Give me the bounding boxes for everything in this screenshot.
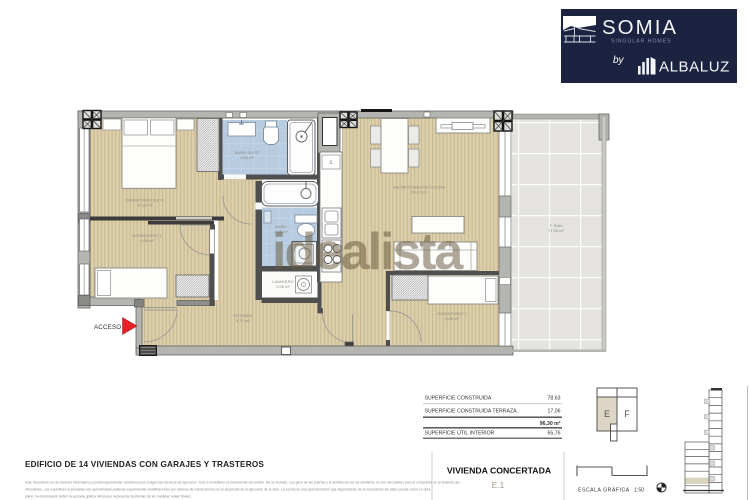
svg-text:78,63: 78,63 (548, 396, 561, 402)
svg-text:8,06 m²: 8,06 m² (445, 316, 459, 321)
svg-text:vinculantes. Las superficies e: vinculantes. Las superficies expresadas … (25, 488, 431, 492)
svg-text:E.1: E.1 (492, 480, 505, 490)
svg-text:96,30 m²: 96,30 m² (540, 421, 561, 427)
svg-text:VIVIENDA CONCERTADA: VIVIENDA CONCERTADA (447, 466, 552, 476)
svg-text:77,06 m²: 77,06 m² (548, 228, 564, 233)
svg-text:SUPERFICIE ÚTIL INTERIOR: SUPERFICIE ÚTIL INTERIOR (425, 430, 495, 437)
svg-text:8,06 m²: 8,06 m² (140, 238, 154, 243)
svg-text:6,71 m²: 6,71 m² (236, 318, 250, 323)
svg-text:idealista: idealista (272, 223, 464, 281)
svg-text:ACCESO: ACCESO (94, 324, 121, 331)
svg-text:2,06 m²: 2,06 m² (276, 284, 290, 289)
svg-text:c: c (330, 160, 333, 166)
svg-text:24,07 m²: 24,07 m² (411, 190, 427, 195)
svg-text:by: by (613, 55, 625, 66)
svg-text:SUPERFICIE CONSTRUIDA TERRAZA: SUPERFICIE CONSTRUIDA TERRAZA (425, 409, 518, 415)
svg-text:E: E (604, 409, 610, 419)
svg-text:4,64 m²: 4,64 m² (240, 155, 254, 160)
svg-text:65,76: 65,76 (548, 431, 561, 437)
svg-text:EDIFICIO DE 14 VIVIENDAS CON G: EDIFICIO DE 14 VIVIENDAS CON GARAJES Y T… (25, 460, 264, 469)
svg-text:SUPERFICIE CONSTRUIDA: SUPERFICIE CONSTRUIDA (425, 396, 492, 402)
svg-text:ESCALA GRÁFICA: ESCALA GRÁFICA (578, 487, 630, 494)
svg-text:F: F (624, 409, 630, 419)
svg-text:10,92 m²: 10,92 m² (137, 203, 153, 208)
svg-text:1:50: 1:50 (634, 488, 644, 494)
svg-text:SOMIA: SOMIA (602, 16, 678, 39)
svg-text:17,06: 17,06 (548, 409, 561, 415)
svg-text:Este documento es de carácter: Este documento es de carácter informativ… (25, 481, 460, 485)
svg-text:ALBALUZ: ALBALUZ (659, 59, 730, 76)
svg-text:plano. No terminación definir: plano. No terminación definir la acotada… (25, 495, 192, 499)
svg-text:SINGULAR HOMES: SINGULAR HOMES (611, 39, 672, 45)
